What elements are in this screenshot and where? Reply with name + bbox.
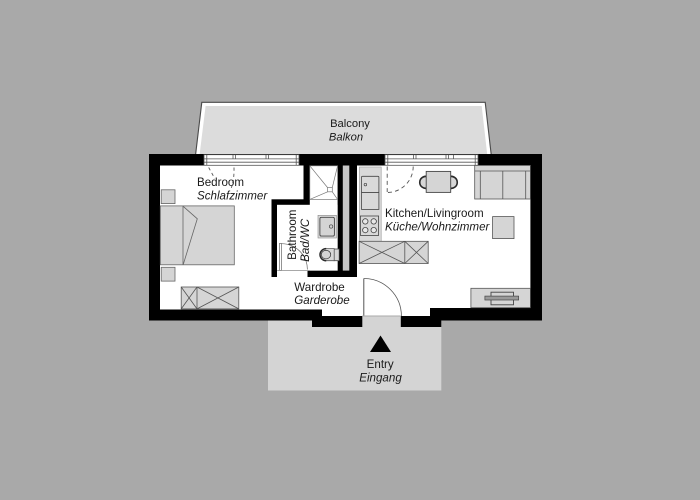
- svg-text:Garderobe: Garderobe: [294, 294, 350, 307]
- svg-text:Balkon: Balkon: [329, 132, 363, 144]
- svg-text:Balcony: Balcony: [330, 118, 370, 130]
- svg-text:Bedroom: Bedroom: [197, 176, 244, 189]
- svg-text:Wardrobe: Wardrobe: [294, 281, 344, 294]
- svg-text:Bathroom: Bathroom: [286, 210, 299, 260]
- svg-text:Schlafzimmer: Schlafzimmer: [197, 189, 268, 202]
- svg-text:Bad/WC: Bad/WC: [299, 218, 312, 262]
- svg-text:Kitchen/Livingroom: Kitchen/Livingroom: [385, 207, 484, 220]
- svg-text:Küche/Wohnzimmer: Küche/Wohnzimmer: [385, 220, 491, 233]
- svg-text:Entry: Entry: [367, 358, 394, 371]
- svg-text:Eingang: Eingang: [359, 372, 402, 385]
